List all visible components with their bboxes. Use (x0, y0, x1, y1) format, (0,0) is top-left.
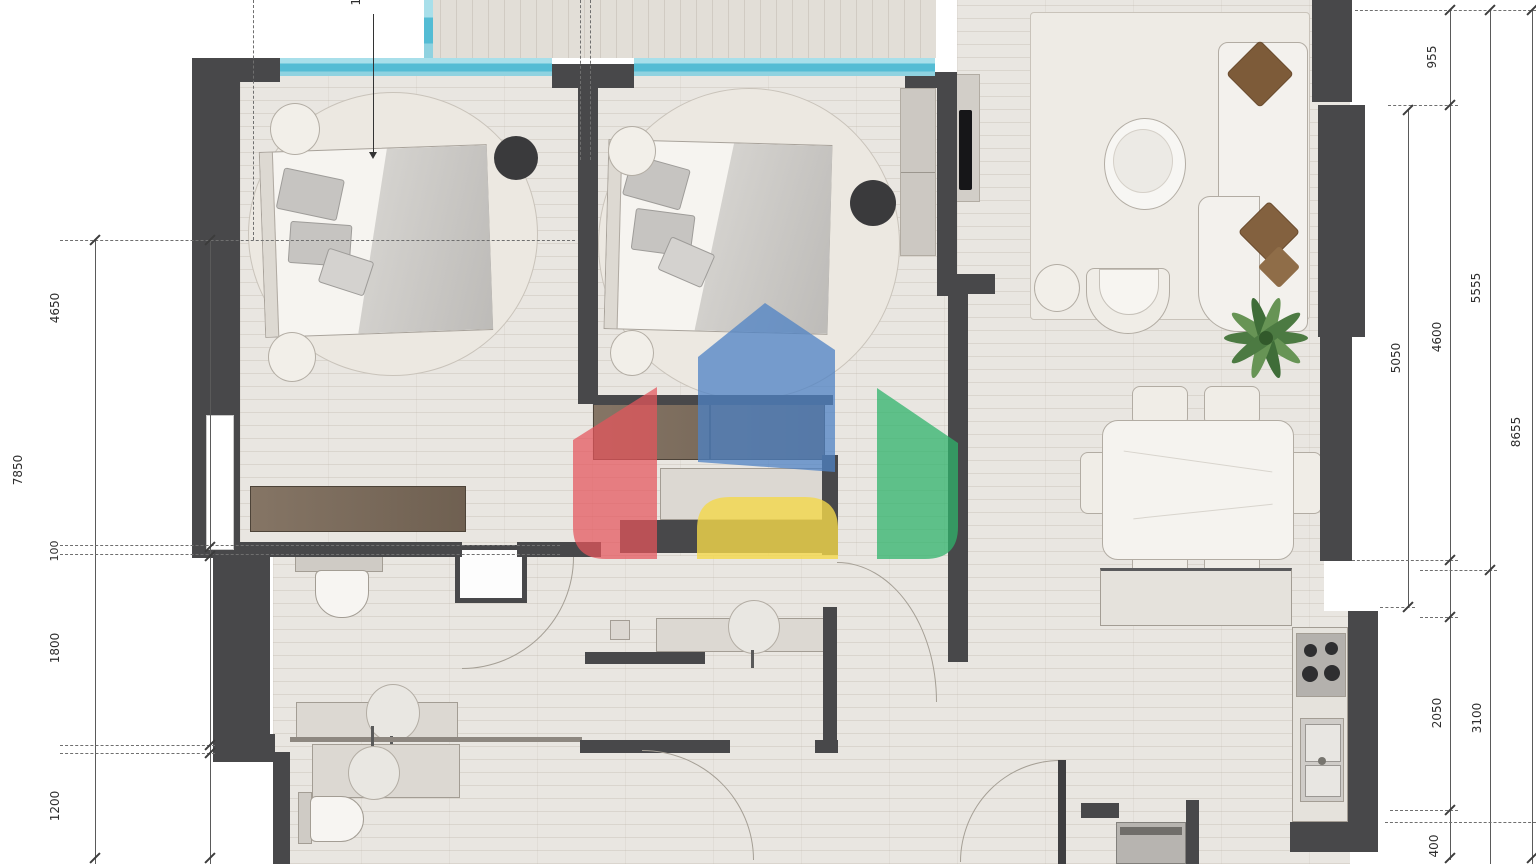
plant (1216, 286, 1316, 390)
bedroom1-dresser (250, 486, 466, 532)
dimension-extension (60, 545, 560, 546)
house-logo-watermark (558, 290, 972, 562)
wall-segment (937, 72, 957, 296)
floor-plan-canvas: 7850 4650 100 1800 1200 955 5050 4600 55… (0, 0, 1536, 864)
wall-segment (823, 607, 837, 753)
wall-segment (585, 652, 705, 664)
entry-door-leaf (1058, 760, 1066, 864)
coffee-table-top (1113, 129, 1173, 193)
wall-segment (273, 752, 290, 864)
wall-segment (815, 740, 838, 753)
dimension-extension (580, 0, 581, 160)
window-opening (1324, 561, 1350, 611)
dimension-label: 5050 (1388, 326, 1404, 390)
soap-tray (610, 620, 630, 640)
window (280, 58, 552, 76)
wall-segment (213, 556, 270, 742)
dimension-extension (1352, 560, 1458, 561)
balcony-floor (424, 0, 936, 58)
toilet (310, 796, 364, 842)
bedroom2-nightstand (608, 126, 656, 176)
bedroom2-stool (850, 180, 896, 226)
dimension-label: 955 (1424, 25, 1440, 89)
dimension-extension (1420, 617, 1458, 618)
faucet (1318, 757, 1326, 765)
dimension-extension (60, 745, 215, 746)
dimension-extension (1355, 10, 1536, 11)
dimension-extension (1385, 822, 1536, 823)
dimension-extension (1380, 607, 1415, 608)
bedroom1-nightstand (270, 103, 320, 155)
dimension-label: 400 (1426, 814, 1442, 864)
burner (1324, 665, 1340, 681)
wall-segment (1312, 0, 1352, 102)
burner (1304, 644, 1317, 657)
dimension-label: 7850 (10, 438, 26, 502)
tv (959, 110, 972, 190)
watermark-red-house (573, 387, 657, 559)
kitchen-sink (1300, 718, 1344, 802)
dimension-label: 100 (47, 519, 63, 583)
sink (728, 600, 780, 654)
dimension-line (1532, 10, 1533, 864)
wall-segment (1290, 822, 1378, 852)
burner (1325, 642, 1338, 655)
dimension-label: 3100 (1469, 686, 1485, 750)
washing-machine (1116, 822, 1186, 864)
watermark-blue-house (698, 303, 835, 472)
dimension-label: 4600 (1429, 305, 1445, 369)
coffee-table (1104, 118, 1186, 210)
dining-table (1102, 420, 1294, 560)
wall-segment (213, 734, 275, 762)
bedroom2-wardrobe (900, 88, 936, 256)
armchair-seat (1099, 269, 1159, 315)
wall-segment (1081, 803, 1119, 818)
dimension-line (95, 240, 96, 864)
bedroom1-bed (259, 144, 493, 338)
dimension-extension (60, 554, 560, 555)
dimension-label: 1800 (47, 616, 63, 680)
wardrobe-door-line (901, 172, 935, 173)
dimension-extension (590, 0, 591, 160)
sink-basin (1305, 765, 1341, 797)
wall-segment (552, 64, 634, 88)
balcony-glass-divider (424, 0, 433, 58)
bed-pillow (276, 167, 345, 221)
dimension-extension (60, 753, 215, 754)
dimension-line (373, 14, 374, 154)
watermark-yellow-base (697, 497, 838, 559)
bedroom1-nightstand (268, 332, 316, 382)
stove (1296, 633, 1346, 697)
kitchen-counter (1100, 568, 1292, 626)
marble-vein (1133, 504, 1272, 520)
watermark-green-house (877, 388, 958, 559)
side-table (1034, 264, 1080, 312)
bath-partition (290, 737, 582, 742)
dimension-extension (253, 0, 254, 240)
dimension-label: 2050 (1429, 681, 1445, 745)
marble-vein (1124, 451, 1273, 473)
washer-door (1120, 827, 1182, 835)
dimension-line (1450, 10, 1451, 860)
sink (348, 746, 400, 800)
burner (1302, 666, 1318, 682)
tap (751, 650, 754, 668)
wall-segment (1186, 800, 1199, 864)
tap (371, 726, 374, 746)
dimension-line (1408, 110, 1409, 607)
toilet (315, 570, 369, 618)
wall-segment (1318, 105, 1365, 337)
dimension-label: 1200 (47, 774, 63, 838)
wall-segment (1348, 611, 1378, 823)
dimension-label: 5555 (1468, 256, 1484, 320)
dimension-extension (60, 240, 575, 241)
dimension-line (1490, 10, 1491, 864)
dimension-arrow (369, 152, 377, 159)
window (634, 58, 935, 76)
dimension-label-partial: 15 (348, 0, 364, 30)
bedroom1-stool (494, 136, 538, 180)
dimension-label: 8655 (1508, 400, 1524, 464)
wall-segment (192, 58, 280, 82)
wall-segment (1320, 337, 1352, 561)
dimension-extension (1420, 570, 1497, 571)
sink (366, 684, 420, 742)
dimension-label: 4650 (47, 276, 63, 340)
